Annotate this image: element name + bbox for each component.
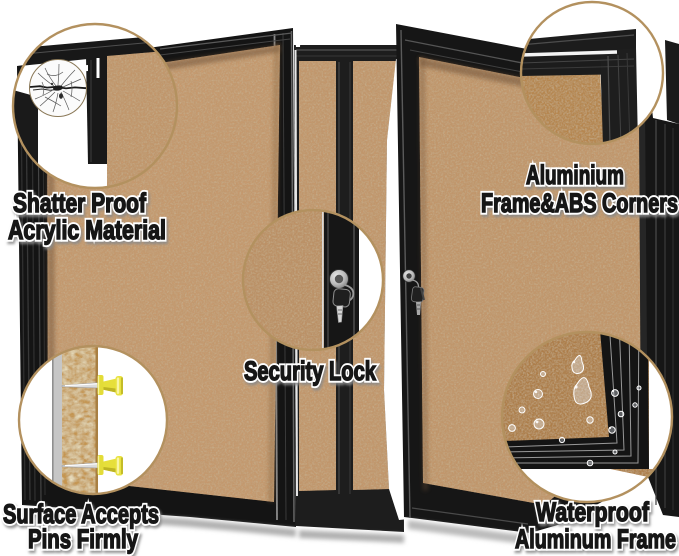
svg-text:Pins Firmly: Pins Firmly <box>28 524 138 554</box>
svg-text:Aluminium: Aluminium <box>526 160 624 190</box>
svg-text:Shatter Proof: Shatter Proof <box>13 188 147 218</box>
svg-text:Aluminum Frame: Aluminum Frame <box>515 524 676 554</box>
svg-text:Security Lock: Security Lock <box>244 356 377 386</box>
svg-text:Acrylic Material: Acrylic Material <box>8 215 166 245</box>
svg-text:Waterproof: Waterproof <box>536 497 650 527</box>
svg-text:Frame&ABS Corners: Frame&ABS Corners <box>481 188 678 218</box>
